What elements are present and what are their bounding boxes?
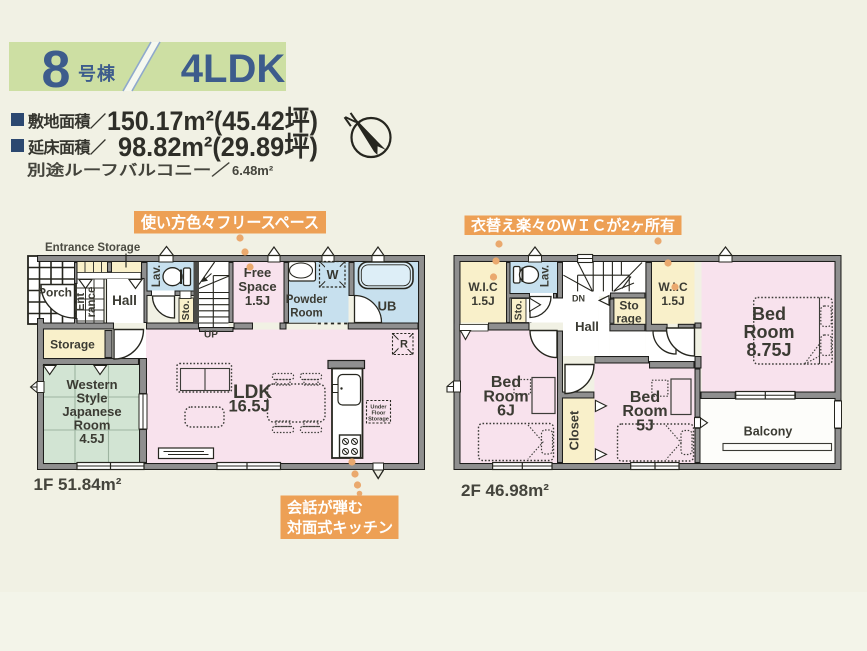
svg-text:敷地面積／: 敷地面積／ (28, 112, 106, 131)
svg-text:16.5J: 16.5J (229, 398, 270, 416)
svg-text:Porch: Porch (38, 286, 72, 300)
svg-text:会話が弾む: 会話が弾む (287, 499, 363, 517)
svg-text:6J: 6J (497, 403, 515, 420)
svg-text:使い方色々フリースペース: 使い方色々フリースペース (140, 213, 319, 232)
svg-text:別途ルーフバルコニー／: 別途ルーフバルコニー／ (26, 161, 230, 179)
svg-text:Closet: Closet (567, 410, 582, 450)
svg-text:W: W (327, 268, 339, 282)
svg-text:Hall: Hall (112, 293, 137, 308)
svg-text:衣替え楽々のＷＩＣが2ヶ所有: 衣替え楽々のＷＩＣが2ヶ所有 (471, 217, 675, 235)
svg-text:4.5J: 4.5J (79, 431, 104, 446)
svg-text:Balcony: Balcony (744, 425, 793, 439)
svg-text:8.75J: 8.75J (746, 340, 791, 360)
svg-text:UP: UP (204, 330, 218, 341)
svg-text:Lav.: Lav. (151, 265, 163, 287)
svg-text:W.I.C: W.I.C (468, 280, 498, 294)
svg-text:Hall: Hall (575, 319, 599, 334)
svg-text:Space: Space (238, 279, 276, 294)
svg-text:8: 8 (42, 41, 71, 99)
svg-text:Storage: Storage (50, 338, 95, 352)
svg-text:5J: 5J (636, 418, 654, 435)
svg-text:Powder: Powder (286, 294, 328, 306)
svg-text:Sto.: Sto. (513, 301, 525, 321)
svg-text:Room: Room (290, 308, 323, 320)
svg-text:Sto: Sto (619, 299, 638, 313)
svg-text:rance: rance (86, 287, 98, 318)
svg-text:rage: rage (616, 312, 642, 326)
svg-text:対面式キッチン: 対面式キッチン (286, 519, 393, 537)
svg-text:4LDK: 4LDK (181, 47, 286, 91)
svg-text:1.5J: 1.5J (661, 294, 684, 308)
svg-text:R: R (400, 339, 408, 351)
svg-text:Entrance Storage: Entrance Storage (45, 242, 140, 254)
svg-text:Sto.: Sto. (180, 301, 192, 321)
svg-text:Lav.: Lav. (540, 265, 552, 287)
svg-text:Storage: Storage (368, 417, 389, 423)
svg-text:6.48m²: 6.48m² (232, 163, 274, 178)
svg-text:98.82m²(29.89坪): 98.82m²(29.89坪) (118, 132, 318, 162)
svg-text:UB: UB (378, 299, 397, 314)
svg-text:号棟: 号棟 (78, 63, 116, 84)
svg-text:2F 46.98m²: 2F 46.98m² (461, 481, 549, 500)
svg-text:Bed: Bed (752, 304, 786, 324)
svg-text:延床面積／: 延床面積／ (27, 138, 106, 157)
svg-text:1F 51.84m²: 1F 51.84m² (34, 475, 122, 494)
svg-text:1.5J: 1.5J (471, 294, 494, 308)
svg-text:Room: Room (744, 322, 795, 342)
svg-text:DN: DN (572, 294, 585, 304)
svg-text:1.5J: 1.5J (245, 293, 270, 308)
